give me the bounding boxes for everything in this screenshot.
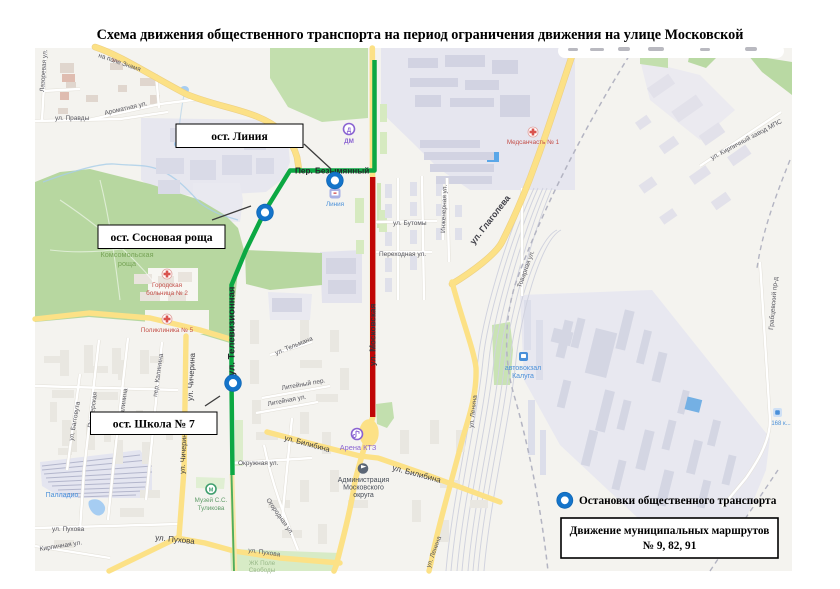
svg-text:ост. Школа № 7: ост. Школа № 7 [113,418,195,431]
svg-text:ул. Бутомы: ул. Бутомы [393,220,427,227]
svg-text:ДМ: ДМ [344,138,354,145]
svg-text:№ 9, 82, 91: № 9, 82, 91 [643,540,697,552]
svg-text:Туликова: Туликова [198,505,225,512]
svg-text:Московского: Московского [343,485,384,492]
svg-text:ЖК Поле: ЖК Поле [249,560,276,567]
svg-text:Схема движения общественного т: Схема движения общественного транспорта … [97,27,744,43]
svg-text:Городская: Городская [152,282,182,289]
svg-text:округа: округа [353,492,374,499]
svg-text:ул. Телевизионная: ул. Телевизионная [227,286,238,376]
svg-text:Калуга: Калуга [512,373,534,380]
svg-text:Окружная ул.: Окружная ул. [238,460,279,467]
svg-text:Арена КТЗ: Арена КТЗ [340,443,377,452]
svg-text:Администрация: Администрация [338,477,390,484]
svg-text:ул. Правды: ул. Правды [55,115,90,122]
svg-text:Остановки общественного трансп: Остановки общественного транспорта [579,495,777,507]
svg-text:М: М [209,488,214,494]
svg-text:ост. Сосновая роща: ост. Сосновая роща [110,231,212,244]
svg-text:Д: Д [347,128,352,134]
svg-text:больница № 2: больница № 2 [146,289,188,297]
svg-text:Поликлиника № 5: Поликлиника № 5 [141,327,194,334]
svg-text:ул. Пухова: ул. Пухова [52,526,85,533]
svg-text:Свободы: Свободы [249,566,276,574]
svg-text:168 к...: 168 к... [771,421,791,427]
svg-text:Комсомольская: Комсомольская [100,250,153,259]
svg-text:ул. Московская: ул. Московская [369,304,378,366]
svg-text:автовокзал: автовокзал [505,365,541,372]
svg-text:Переходная ул.: Переходная ул. [379,251,426,258]
svg-text:роща: роща [118,259,137,268]
svg-text:Медсанчасть № 1: Медсанчасть № 1 [507,139,560,146]
svg-text:Музей С.С.: Музей С.С. [195,496,228,504]
svg-text:Палладио: Палладио [46,492,79,499]
svg-text:ост. Линия: ост. Линия [211,130,268,143]
svg-text:Линия: Линия [326,201,344,208]
svg-text:Движение муниципальных маршрут: Движение муниципальных маршрутов [570,525,770,537]
